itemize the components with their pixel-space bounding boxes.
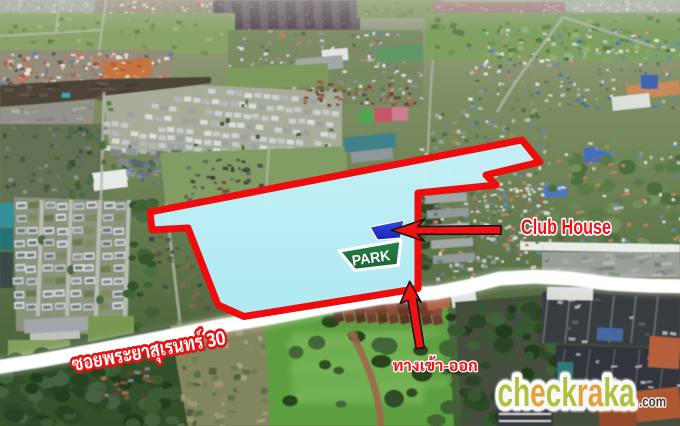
- svg-text:checkraka: checkraka: [498, 371, 636, 415]
- svg-text:Club House: Club House: [521, 216, 611, 239]
- svg-text:.com: .com: [639, 394, 666, 411]
